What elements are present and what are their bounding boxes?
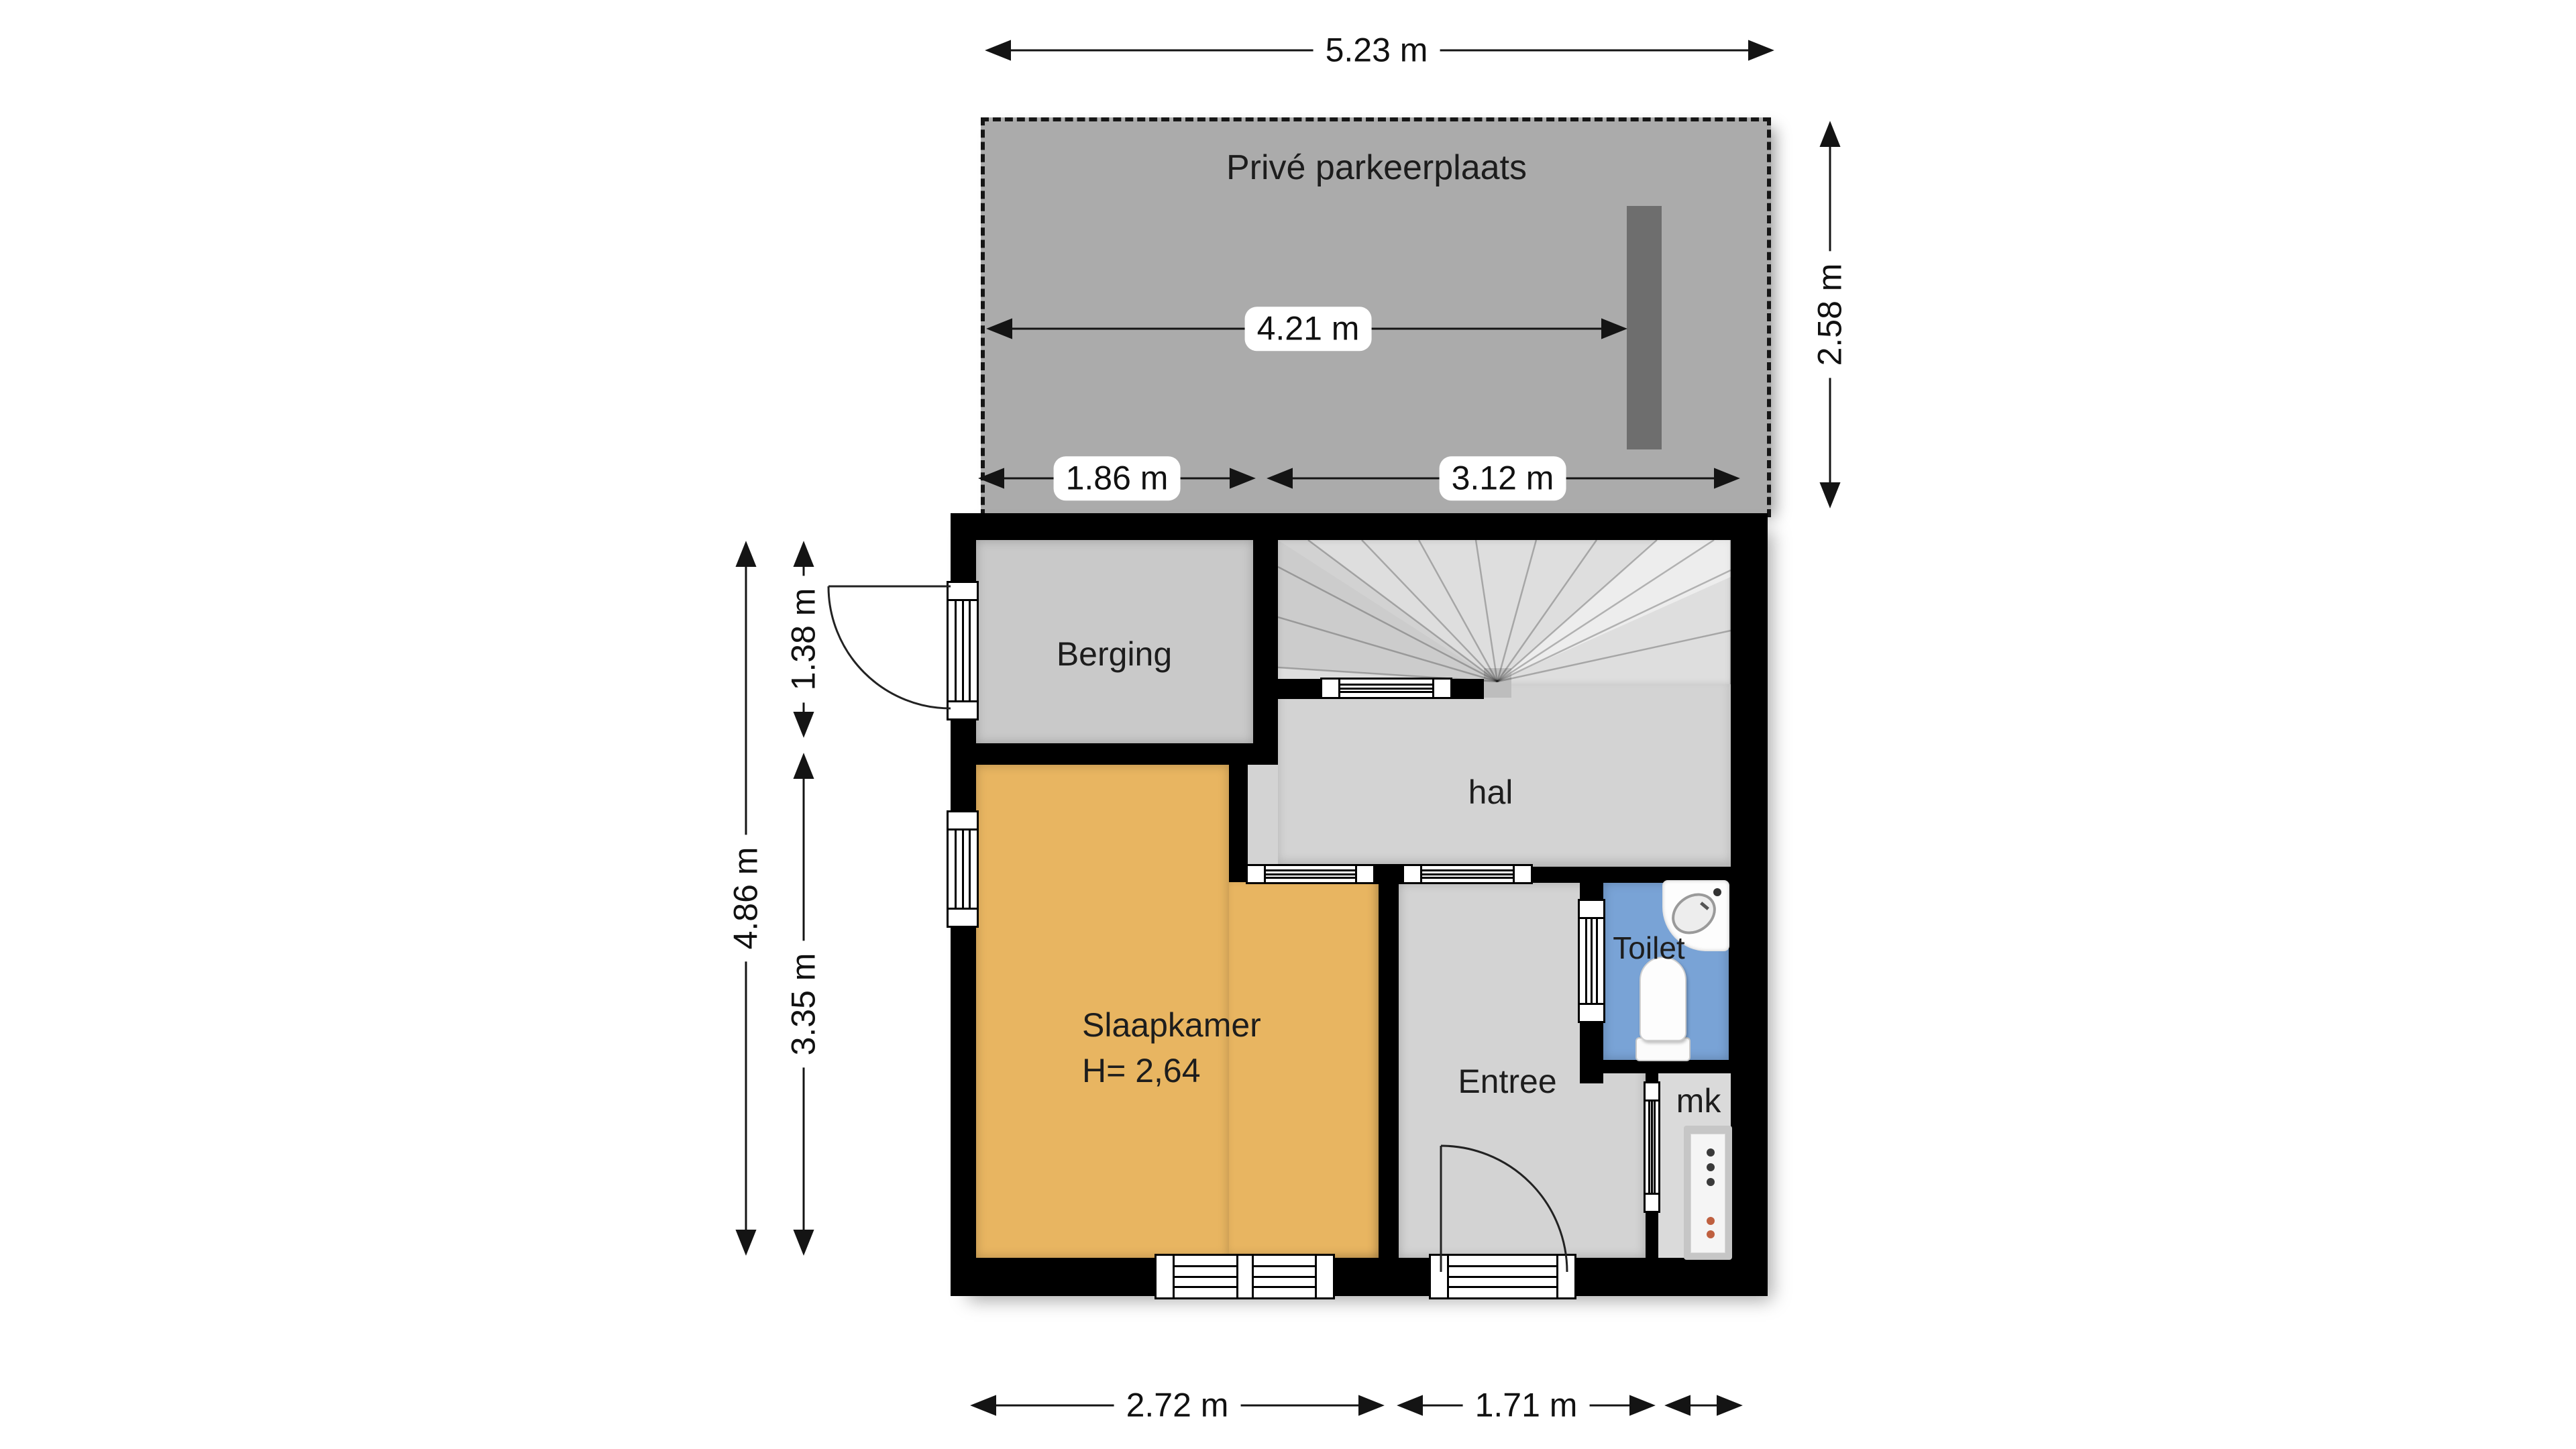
entree-label: Entree (1458, 1062, 1556, 1101)
mk-label: mk (1676, 1081, 1721, 1120)
dim-parking-left-section: 1.86 m (1054, 456, 1181, 500)
dim-bottom-entree: 1.71 m (1463, 1383, 1590, 1428)
dim-bottom-slaapkamer: 2.72 m (1114, 1383, 1241, 1428)
dim-parking-inner-width: 4.21 m (1245, 307, 1372, 351)
stair-treads (1278, 540, 1731, 684)
berging-label: Berging (1057, 635, 1172, 674)
door-swing-arcs (828, 586, 1567, 1272)
dim-house-left-total: 4.86 m (724, 835, 768, 962)
hal-label: hal (1468, 773, 1513, 812)
dim-house-left-upper: 1.38 m (782, 576, 826, 703)
slaapkamer-label-block: Slaapkamer H= 2,64 (1082, 1005, 1261, 1091)
toilet-label: Toilet (1613, 930, 1684, 966)
floorplan-overlay (0, 0, 2576, 1449)
parking-label: Privé parkeerplaats (1226, 148, 1527, 188)
dim-parking-right-section: 3.12 m (1440, 456, 1566, 500)
floor-plan: Privé parkeerplaats Berging hal Slaapkam… (0, 0, 2576, 1449)
dim-parking-width: 5.23 m (1313, 28, 1440, 72)
dimension-lines (746, 50, 1830, 1405)
slaapkamer-label: Slaapkamer (1082, 1005, 1261, 1045)
dim-house-left-lower: 3.35 m (782, 941, 826, 1068)
slaapkamer-height-label: H= 2,64 (1082, 1051, 1261, 1091)
dim-parking-depth: 2.58 m (1808, 252, 1852, 378)
